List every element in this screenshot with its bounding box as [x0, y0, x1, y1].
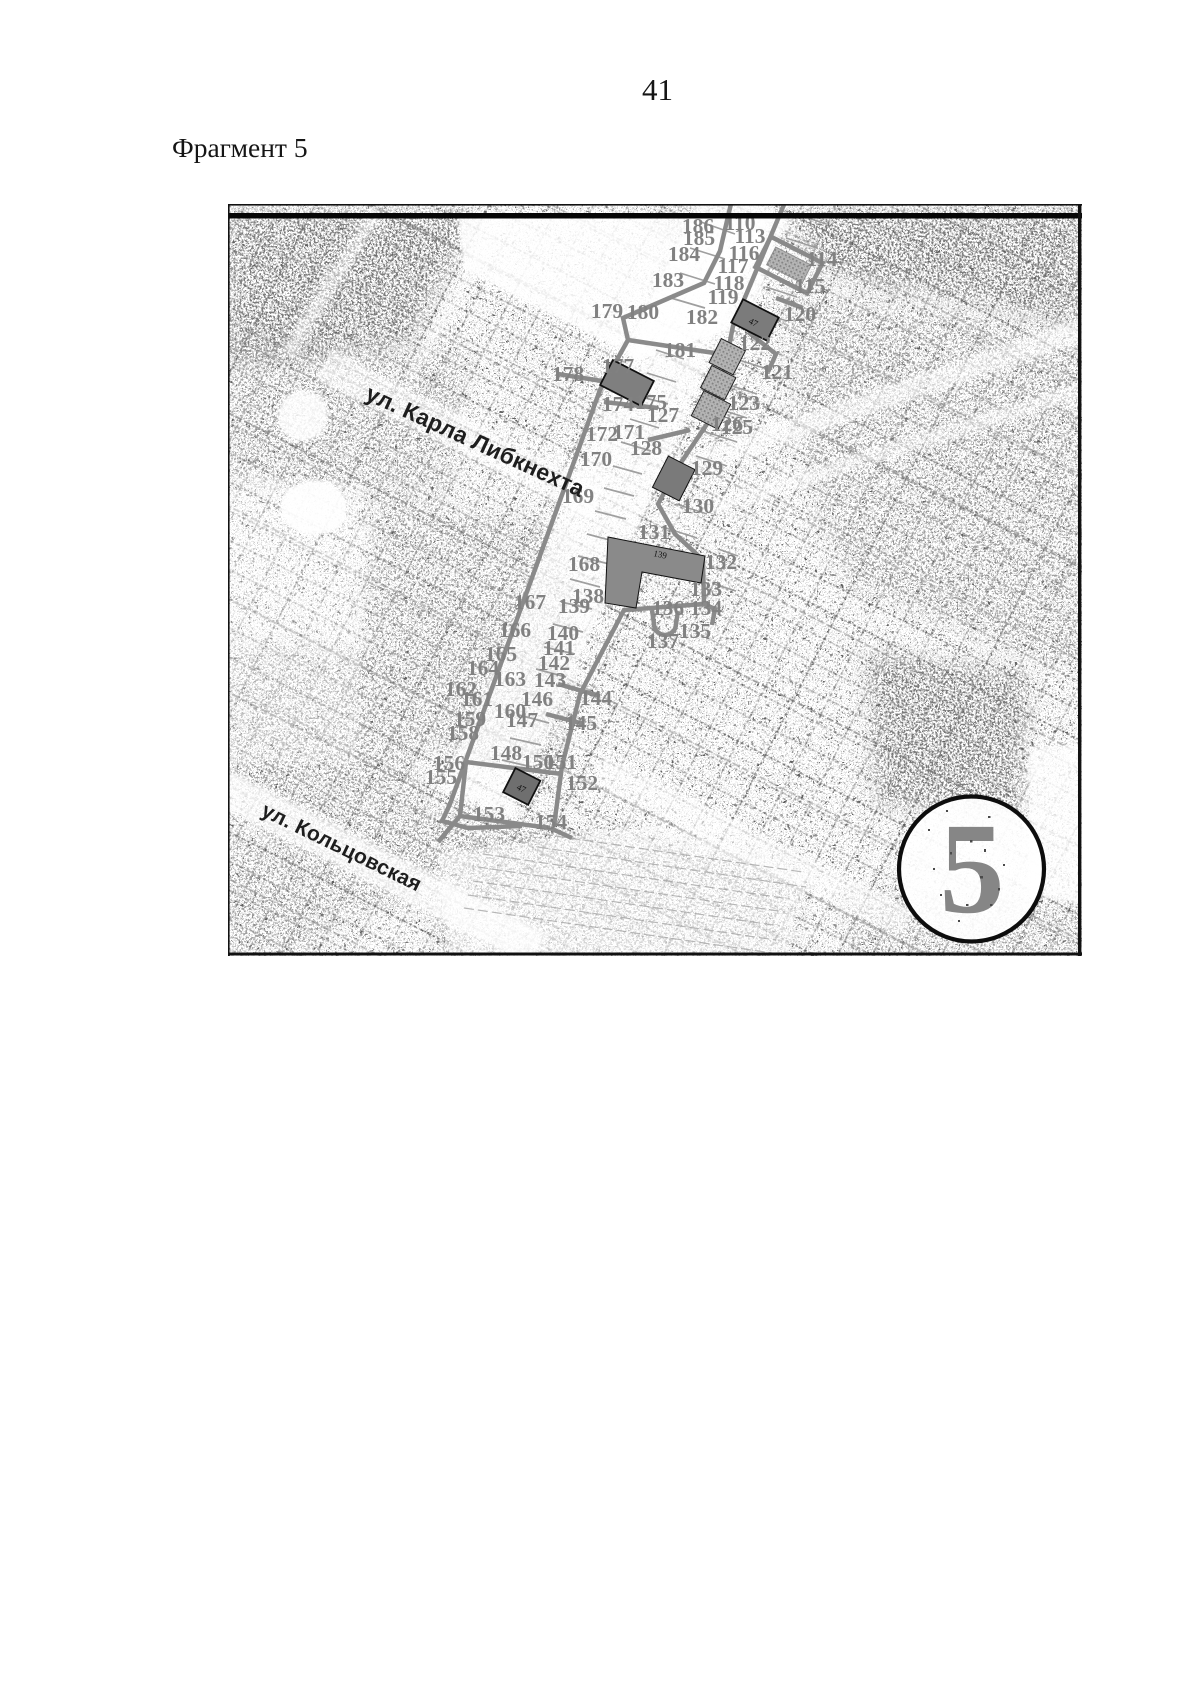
svg-text:148: 148 [490, 741, 523, 765]
svg-text:154: 154 [535, 810, 568, 834]
svg-text:131: 131 [638, 520, 670, 544]
svg-text:181: 181 [664, 338, 696, 362]
svg-text:114: 114 [806, 247, 837, 271]
svg-text:170: 170 [580, 447, 612, 471]
svg-text:129: 129 [691, 456, 723, 480]
svg-text:172: 172 [586, 422, 618, 446]
svg-text:136: 136 [652, 596, 685, 620]
svg-text:182: 182 [686, 305, 718, 329]
svg-text:153: 153 [473, 802, 506, 826]
svg-text:144: 144 [580, 686, 613, 710]
svg-text:155: 155 [425, 765, 457, 789]
svg-text:179: 179 [591, 299, 623, 323]
svg-text:122: 122 [739, 331, 771, 355]
svg-text:137: 137 [647, 629, 680, 653]
svg-text:168: 168 [568, 552, 601, 576]
svg-text:147: 147 [506, 708, 539, 732]
svg-text:135: 135 [679, 619, 711, 643]
svg-text:128: 128 [630, 436, 663, 460]
svg-text:115: 115 [794, 274, 825, 298]
svg-text:121: 121 [761, 360, 793, 384]
svg-text:120: 120 [784, 302, 816, 326]
svg-text:180: 180 [627, 300, 659, 324]
svg-text:167: 167 [514, 590, 547, 614]
svg-text:127: 127 [647, 403, 680, 427]
svg-text:134: 134 [690, 596, 723, 620]
svg-text:183: 183 [652, 268, 685, 292]
svg-text:126: 126 [711, 412, 744, 436]
svg-text:132: 132 [705, 550, 737, 574]
svg-text:139: 139 [558, 594, 590, 618]
svg-text:166: 166 [499, 618, 532, 642]
svg-text:5: 5 [940, 797, 1005, 941]
svg-text:158: 158 [447, 721, 480, 745]
svg-text:174: 174 [602, 392, 635, 416]
svg-text:177: 177 [602, 354, 635, 378]
svg-text:184: 184 [668, 242, 701, 266]
svg-text:152: 152 [566, 771, 598, 795]
svg-text:145: 145 [565, 711, 597, 735]
svg-text:178: 178 [552, 362, 585, 386]
svg-text:130: 130 [682, 494, 714, 518]
